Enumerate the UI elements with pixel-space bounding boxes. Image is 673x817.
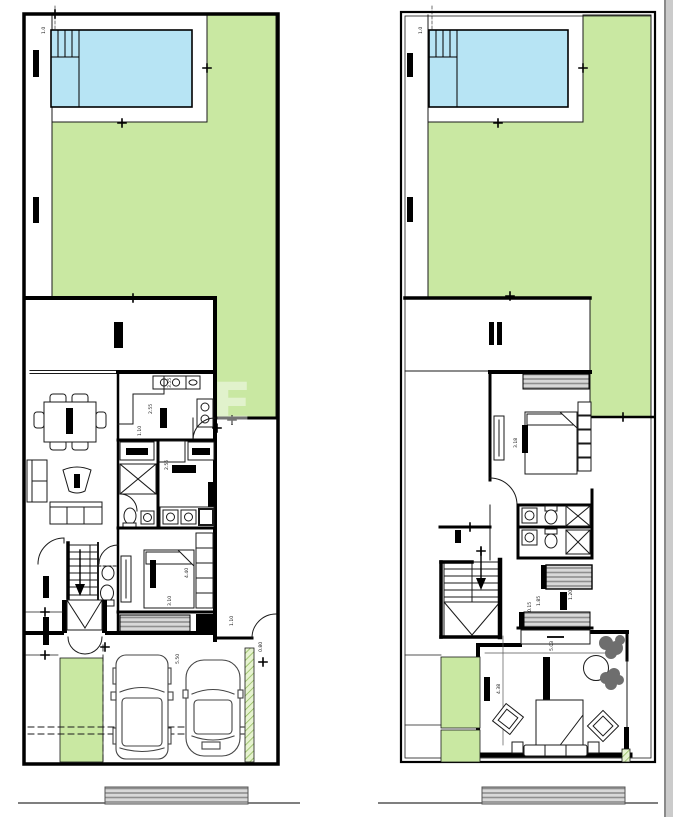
upper-floor-plan: 1.0 — [401, 6, 655, 762]
louver-hatch — [523, 374, 589, 389]
door-arc — [99, 545, 118, 564]
street — [18, 787, 658, 804]
stove-icon — [153, 376, 200, 389]
wall-pier — [196, 614, 214, 633]
bed-icon — [536, 700, 583, 748]
terrace-door-marker — [497, 322, 502, 345]
balcony-hatch — [546, 565, 592, 589]
dim-marker — [150, 560, 156, 588]
window-marker — [33, 50, 39, 77]
dining-chair — [34, 412, 44, 428]
window-marker — [624, 727, 629, 749]
dimension-label: 2.55 — [164, 460, 170, 470]
plant-icon — [599, 635, 625, 659]
window-marker — [43, 576, 49, 598]
terrace-door-marker — [489, 322, 494, 345]
toilet-icon — [545, 506, 557, 524]
scrollbar[interactable] — [664, 0, 673, 817]
dimension-label: 1.20 — [568, 590, 574, 600]
wall-pier — [519, 612, 524, 628]
floorplan-document: 1.0 — [0, 0, 673, 817]
pool — [51, 30, 192, 107]
desk — [121, 556, 131, 602]
setback-lines — [405, 655, 441, 725]
planter-strip — [441, 730, 480, 762]
sedan-car-icon — [183, 660, 243, 756]
wardrobe — [196, 533, 213, 608]
dimension-label: 1.10 — [229, 616, 235, 626]
sidewalk-hatch — [482, 787, 625, 804]
ottoman — [493, 704, 524, 735]
sidewalk-hatch — [105, 787, 248, 804]
hedge-strip — [622, 749, 630, 762]
stairs-icon — [441, 548, 500, 637]
dimension-label: 2.55 — [148, 404, 154, 414]
pool — [429, 30, 568, 107]
suv-car-icon — [111, 655, 173, 759]
front-door-arcs — [68, 637, 102, 654]
sofa-two-seat — [27, 460, 47, 502]
window-marker — [407, 53, 413, 77]
shower — [120, 464, 156, 511]
entry-canopy — [62, 600, 107, 654]
wall-pier — [541, 565, 546, 589]
dim-marker — [455, 530, 461, 543]
dim-marker — [160, 408, 167, 428]
dining-chair — [96, 412, 106, 428]
floor-plans-canvas: 1.0 — [0, 0, 673, 817]
planter-strip — [441, 657, 480, 728]
dimension-label: 1.85 — [536, 596, 542, 606]
dimension-label: 3.10 — [167, 596, 173, 606]
dim-marker — [172, 465, 196, 473]
shower — [566, 506, 590, 526]
wardrobe — [578, 402, 591, 471]
toilet-icon — [545, 529, 557, 548]
toilet-icon — [123, 508, 136, 529]
door-arc — [490, 478, 517, 505]
entry-door-arcs — [38, 538, 64, 564]
stairs-icon — [68, 543, 98, 598]
shower — [566, 530, 590, 554]
laundry — [160, 465, 214, 527]
window-marker — [407, 197, 413, 222]
window-marker — [33, 197, 39, 223]
dimension-label: 4.40 — [184, 568, 190, 578]
bedroom-2 — [490, 402, 591, 505]
dimension-label: 1.0 — [41, 27, 47, 34]
dim-marker — [522, 425, 528, 453]
terrace-door-marker — [114, 322, 123, 348]
closet — [188, 442, 214, 460]
dim-marker — [484, 677, 490, 701]
dimension-label: 4.38 — [496, 684, 502, 694]
fridge-icon — [197, 399, 213, 427]
planter-strip — [60, 658, 103, 762]
kitchen — [118, 376, 215, 440]
dimension-label: 1.0 — [418, 27, 424, 34]
door-arc — [252, 614, 276, 638]
dimension-label: 0.15 — [527, 602, 533, 612]
dimension-label: 5.03 — [549, 641, 555, 651]
bedroom — [121, 533, 213, 608]
deck-hatch — [120, 615, 190, 633]
closet — [120, 442, 154, 460]
sofa-three-seat — [50, 502, 102, 524]
dimension-label: 0.80 — [258, 642, 264, 652]
dining-table — [34, 394, 106, 450]
window-marker — [43, 617, 49, 645]
bed-icon — [525, 412, 577, 474]
dim-marker — [543, 657, 550, 702]
bathrooms — [518, 490, 592, 558]
dimension-label: 3.18 — [513, 438, 519, 448]
pantry — [157, 441, 185, 462]
sink-icon — [141, 511, 154, 524]
sink-icon — [522, 508, 537, 523]
louver-hatch — [524, 612, 590, 628]
dim-marker — [560, 592, 567, 610]
desk — [494, 416, 504, 460]
dimension-label: 3.55 — [167, 378, 173, 388]
toilet-icon — [101, 585, 114, 601]
side-gate — [215, 614, 276, 638]
dimension-label: 1.10 — [137, 426, 143, 436]
dimension-label: 5.50 — [175, 654, 181, 664]
powder-bath — [98, 543, 118, 606]
watermark: E — [212, 370, 252, 438]
dresser — [521, 630, 590, 644]
armchair — [63, 467, 91, 493]
sliding-door — [30, 371, 118, 374]
sink-icon — [522, 530, 537, 545]
hedge-strip — [245, 648, 254, 762]
ottoman — [587, 710, 618, 741]
sink-icon — [102, 566, 114, 580]
